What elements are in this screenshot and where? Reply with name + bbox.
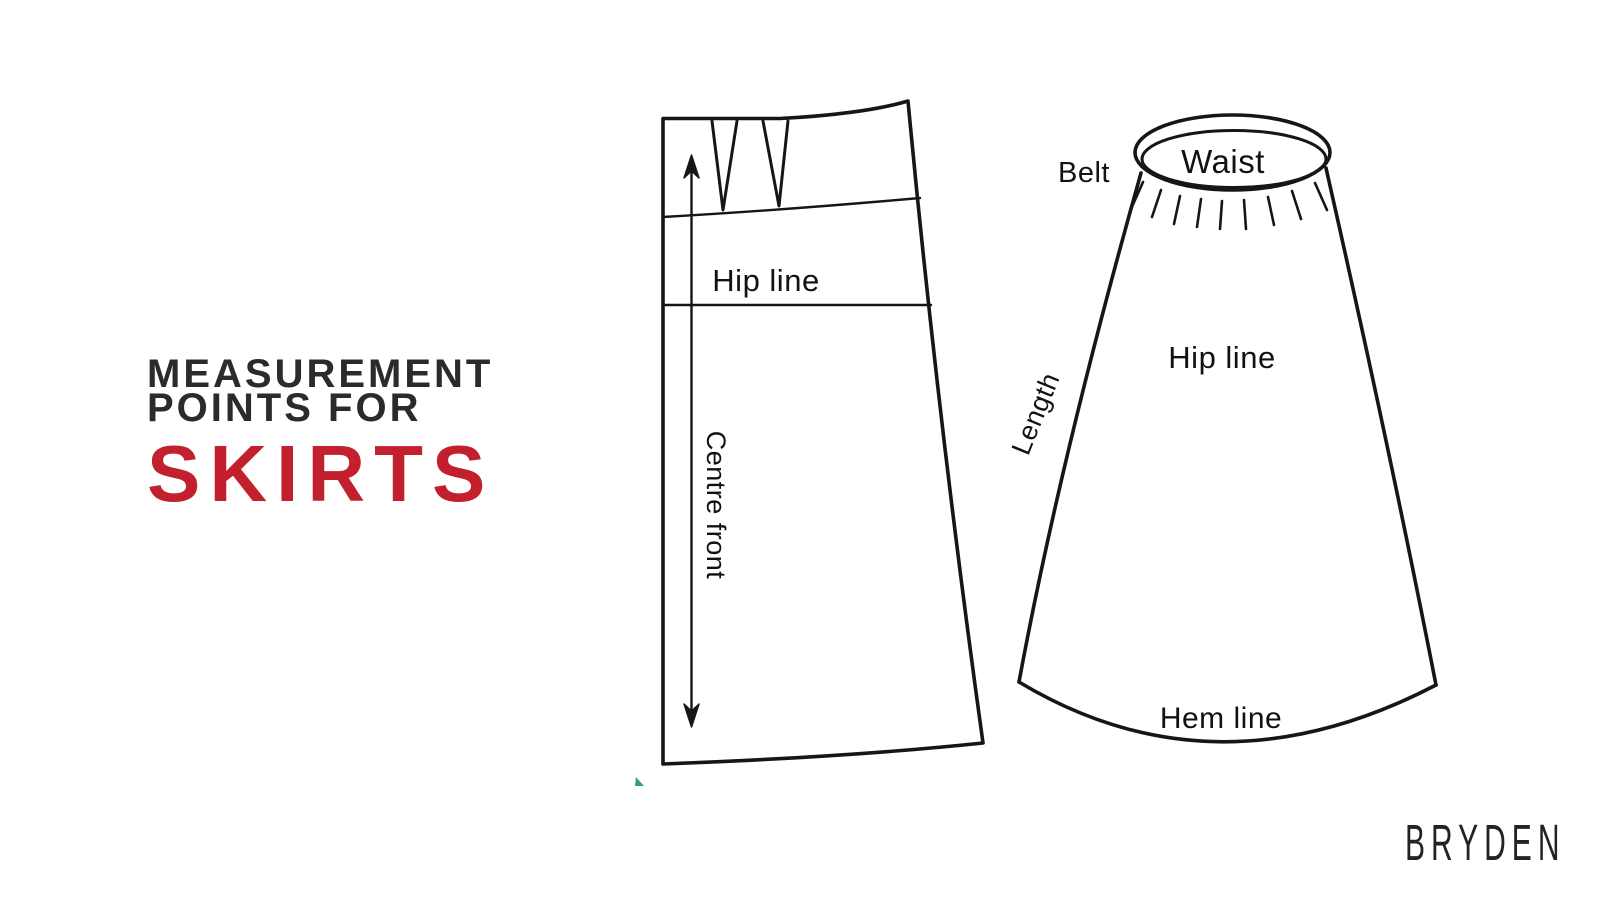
gather-line: [1268, 197, 1274, 225]
teal-artifact-mark: [635, 777, 644, 786]
hem-line-label: Hem line: [1160, 702, 1282, 735]
waist-dart-left: [712, 121, 737, 210]
pattern-waist-seam: [663, 198, 920, 217]
waist-label: Waist: [1181, 143, 1265, 180]
gather-line: [1197, 199, 1201, 227]
gather-line: [1152, 190, 1161, 217]
infographic-canvas: MEASUREMENT POINTS FOR SKIRTS Hip line C…: [0, 0, 1600, 900]
skirt-front-diagram: Belt Waist Hip line Length Hem line: [1006, 115, 1436, 742]
pattern-centre-front-label: Centre front: [701, 431, 731, 580]
gather-line: [1315, 183, 1327, 210]
length-label: Length: [1006, 368, 1066, 459]
pattern-piece-diagram: Hip line Centre front: [663, 101, 983, 764]
belt-label: Belt: [1058, 157, 1110, 189]
skirt-right-seam: [1326, 168, 1436, 685]
waist-dart-right: [763, 121, 788, 206]
gather-line: [1244, 200, 1246, 229]
brand-logo: BRYDEN: [1405, 815, 1565, 873]
skirt-hip-line-label: Hip line: [1168, 340, 1275, 375]
gather-line: [1292, 191, 1301, 219]
skirt-measurement-diagram: Hip line Centre front Belt Waist: [0, 0, 1600, 900]
gather-line: [1174, 196, 1180, 224]
pattern-hip-line-label: Hip line: [712, 263, 819, 298]
gather-line: [1220, 201, 1222, 229]
